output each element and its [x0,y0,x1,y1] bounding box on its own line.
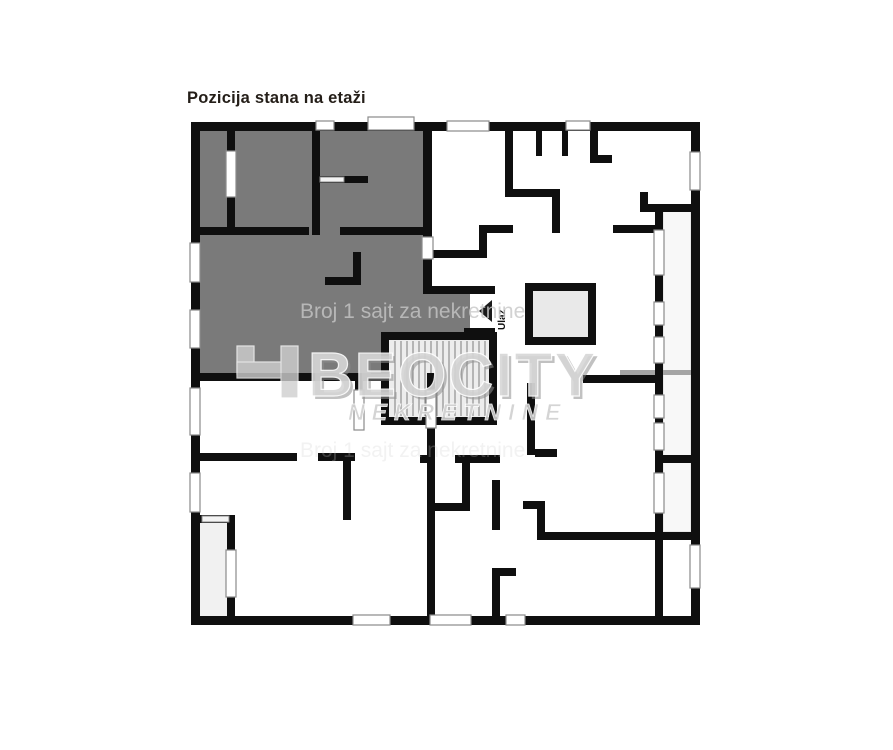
elevator [525,283,596,345]
watermark-tagline-faint: Broj 1 sajt za nekretnine [300,439,525,462]
watermark-tagline: Broj 1 sajt za nekretnine [300,300,525,323]
floor-plan: Ulaz Broj 1 sajt za nekretnine Broj 1 sa… [0,0,893,750]
terrace-bottom-left [200,523,227,616]
watermark-logo-sub: NEKRETNINE [348,399,568,425]
